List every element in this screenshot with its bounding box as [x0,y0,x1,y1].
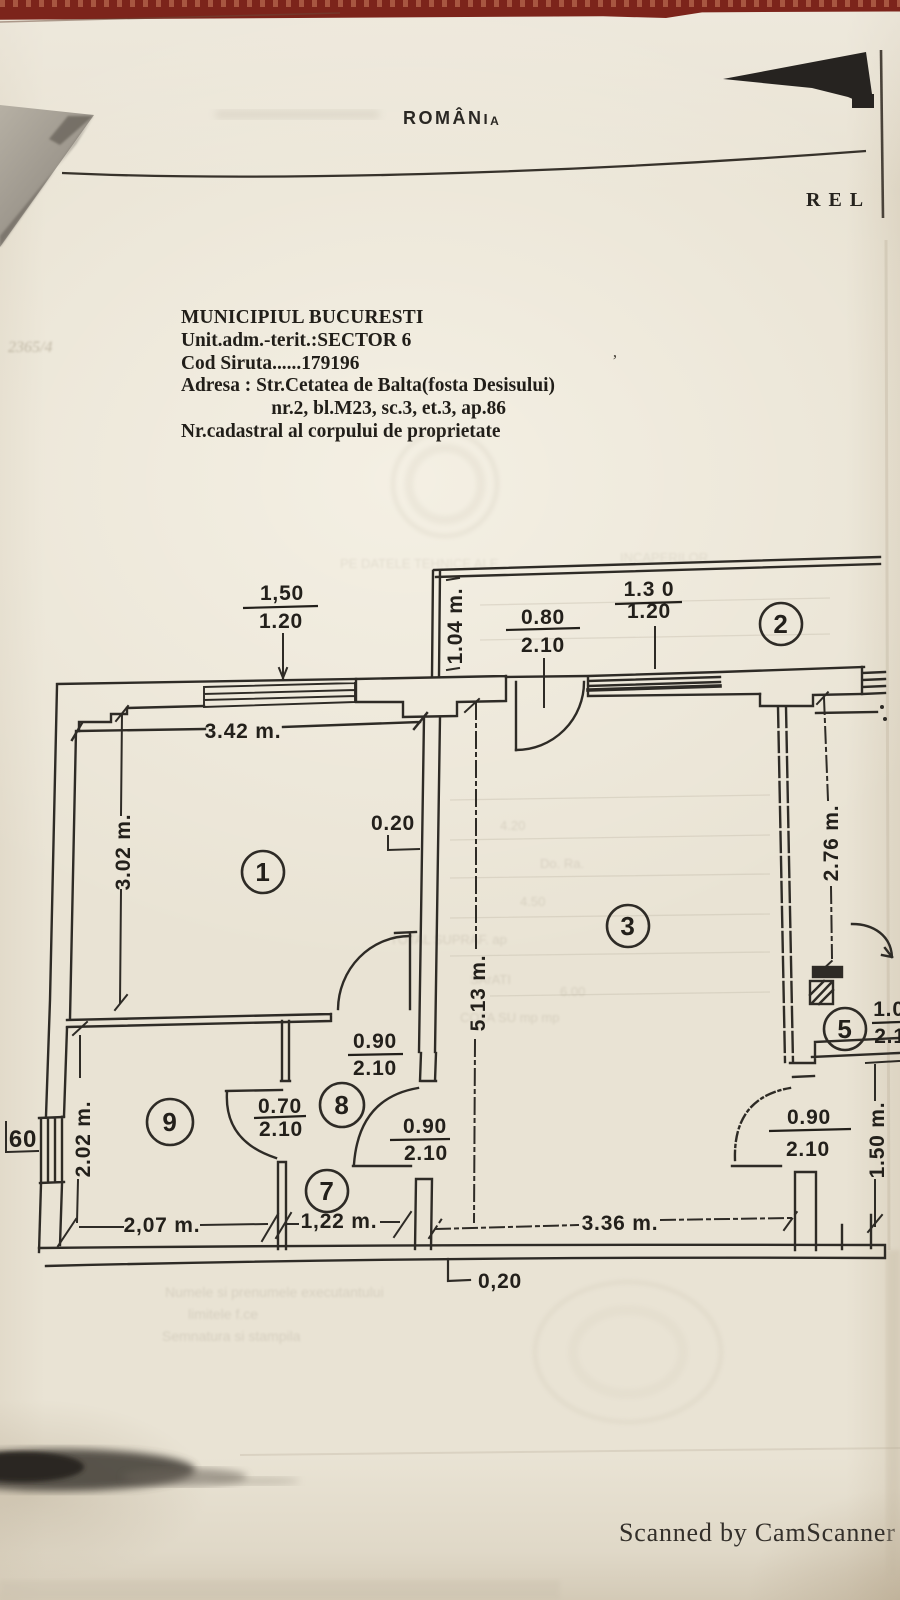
svg-text:limitele f.ce: limitele f.ce [188,1306,258,1322]
svg-text:5: 5 [837,1014,852,1044]
svg-text:2.02 m.: 2.02 m. [72,1101,95,1178]
svg-text:3.36 m.: 3.36 m. [582,1212,659,1235]
svg-text:4.20: 4.20 [500,818,525,833]
svg-text:1: 1 [255,857,270,887]
svg-text:0,20: 0,20 [478,1270,522,1293]
svg-text:0.20: 0.20 [371,812,415,835]
svg-text:8: 8 [334,1090,349,1120]
svg-text:9: 9 [162,1107,177,1137]
svg-text:1.20: 1.20 [259,610,303,633]
svg-text:Do. Ra.: Do. Ra. [540,856,584,871]
svg-text:TOTAL SUPRAF. ap: TOTAL SUPRAF. ap [390,932,507,947]
svg-text:60: 60 [9,1126,37,1153]
svg-text:6.00: 6.00 [560,984,585,999]
svg-text:2.76 m.: 2.76 m. [820,805,843,882]
svg-text:2.1: 2.1 [874,1025,900,1048]
svg-text:5.13 m.: 5.13 m. [467,955,490,1032]
svg-text:2365/4: 2365/4 [8,339,52,356]
svg-text:Numele si prenumele executantu: Numele si prenumele executantului [165,1284,384,1300]
svg-text:Semnatura si stampila: Semnatura si stampila [162,1328,301,1344]
svg-text:2.10: 2.10 [259,1118,303,1141]
svg-text:0.70: 0.70 [258,1095,302,1118]
svg-text:1.0: 1.0 [873,998,900,1021]
svg-text:2.10: 2.10 [786,1138,830,1161]
svg-text:’: ’ [612,351,618,370]
svg-text:2,07 m.: 2,07 m. [124,1214,201,1237]
svg-text:0.80: 0.80 [521,606,565,629]
svg-text:2.10: 2.10 [404,1142,448,1165]
svg-text:1.50 m.: 1.50 m. [866,1102,889,1179]
svg-text:0.90: 0.90 [403,1115,447,1138]
svg-text:3.42 m.: 3.42 m. [205,720,282,743]
svg-text:7: 7 [319,1176,334,1206]
svg-text:1.3 0: 1.3 0 [624,578,675,601]
svg-text:1.04 m.: 1.04 m. [444,588,467,665]
svg-text:3.02 m.: 3.02 m. [112,814,135,891]
svg-text:2.10: 2.10 [521,634,565,657]
svg-text:1.20: 1.20 [627,600,671,623]
svg-text:4.50: 4.50 [520,894,545,909]
svg-text:0.90: 0.90 [353,1030,397,1053]
svg-text:2: 2 [773,609,788,639]
svg-text:1,22 m.: 1,22 m. [301,1210,378,1233]
svg-text:3: 3 [620,911,635,941]
svg-text:2.10: 2.10 [353,1057,397,1080]
svg-text:0.90: 0.90 [787,1106,831,1129]
svg-text:1,50: 1,50 [260,582,304,605]
